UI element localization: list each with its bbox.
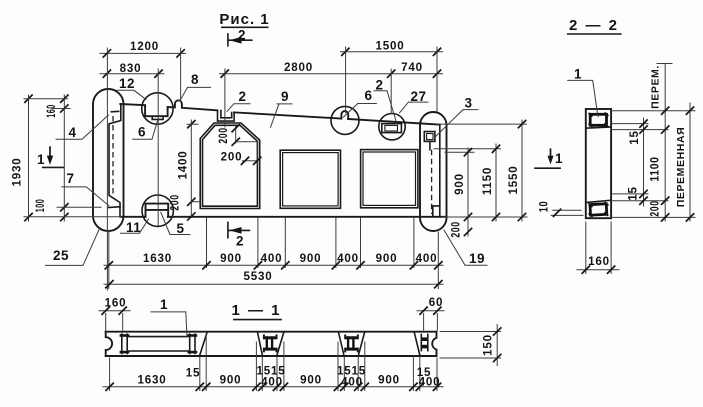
svg-text:5: 5: [177, 221, 185, 236]
svg-text:15: 15: [627, 186, 640, 201]
svg-text:1100: 1100: [649, 156, 662, 181]
svg-text:900: 900: [453, 173, 466, 195]
svg-text:900: 900: [220, 252, 242, 265]
svg-text:3: 3: [465, 96, 473, 111]
svg-text:1: 1: [160, 297, 168, 312]
svg-text:15: 15: [628, 130, 641, 145]
svg-text:1550: 1550: [507, 166, 520, 195]
svg-text:6: 6: [138, 125, 146, 140]
svg-text:1: 1: [574, 67, 582, 82]
svg-text:7: 7: [67, 171, 75, 186]
svg-text:900: 900: [300, 374, 322, 387]
svg-text:900: 900: [376, 252, 398, 265]
svg-text:2800: 2800: [284, 61, 313, 74]
svg-text:6: 6: [365, 88, 373, 103]
svg-text:Рис. 1: Рис. 1: [219, 11, 269, 28]
svg-text:400: 400: [261, 252, 283, 265]
svg-text:150: 150: [482, 334, 495, 356]
svg-text:1: 1: [555, 151, 563, 166]
svg-text:1150: 1150: [481, 167, 494, 195]
svg-text:160: 160: [105, 297, 127, 310]
svg-text:9: 9: [281, 89, 289, 104]
svg-text:1500: 1500: [376, 39, 405, 52]
svg-text:4: 4: [69, 125, 77, 140]
svg-text:1930: 1930: [11, 158, 24, 187]
svg-text:25: 25: [53, 248, 69, 263]
svg-text:10: 10: [538, 201, 551, 213]
svg-text:200: 200: [169, 194, 181, 210]
svg-text:900: 900: [220, 374, 242, 387]
svg-text:200: 200: [218, 127, 230, 143]
svg-text:ПЕРЕМЕННАЯ: ПЕРЕМЕННАЯ: [675, 127, 687, 208]
svg-text:400: 400: [341, 376, 363, 389]
svg-text:200: 200: [649, 200, 661, 216]
svg-text:1200: 1200: [130, 40, 159, 53]
svg-text:400: 400: [416, 252, 438, 265]
svg-text:60: 60: [429, 296, 444, 309]
svg-text:1400: 1400: [177, 151, 190, 180]
svg-text:12: 12: [119, 76, 135, 91]
svg-text:1: 1: [37, 152, 45, 167]
svg-text:160: 160: [588, 255, 610, 268]
svg-text:400: 400: [419, 376, 441, 389]
svg-text:1 — 1: 1 — 1: [231, 302, 281, 319]
svg-text:400: 400: [337, 252, 359, 265]
svg-text:830: 830: [120, 62, 142, 75]
svg-text:8: 8: [191, 72, 199, 87]
svg-text:900: 900: [300, 252, 322, 265]
svg-text:11: 11: [126, 220, 141, 235]
svg-text:2: 2: [236, 234, 244, 249]
svg-text:5530: 5530: [244, 270, 273, 283]
svg-text:2: 2: [239, 89, 247, 104]
svg-text:2 — 2: 2 — 2: [569, 17, 619, 34]
svg-text:2: 2: [238, 28, 246, 43]
svg-text:1630: 1630: [138, 374, 167, 387]
svg-text:200: 200: [221, 151, 243, 164]
svg-text:160: 160: [45, 104, 58, 117]
svg-text:19: 19: [469, 251, 485, 266]
svg-text:1630: 1630: [143, 252, 172, 265]
svg-text:200: 200: [450, 221, 462, 237]
svg-text:740: 740: [401, 61, 423, 74]
svg-text:400: 400: [261, 376, 283, 389]
svg-text:900: 900: [378, 374, 400, 387]
svg-text:ПЕРЕМ.: ПЕРЕМ.: [650, 65, 662, 109]
svg-text:100: 100: [34, 199, 47, 212]
svg-text:15: 15: [186, 367, 201, 380]
